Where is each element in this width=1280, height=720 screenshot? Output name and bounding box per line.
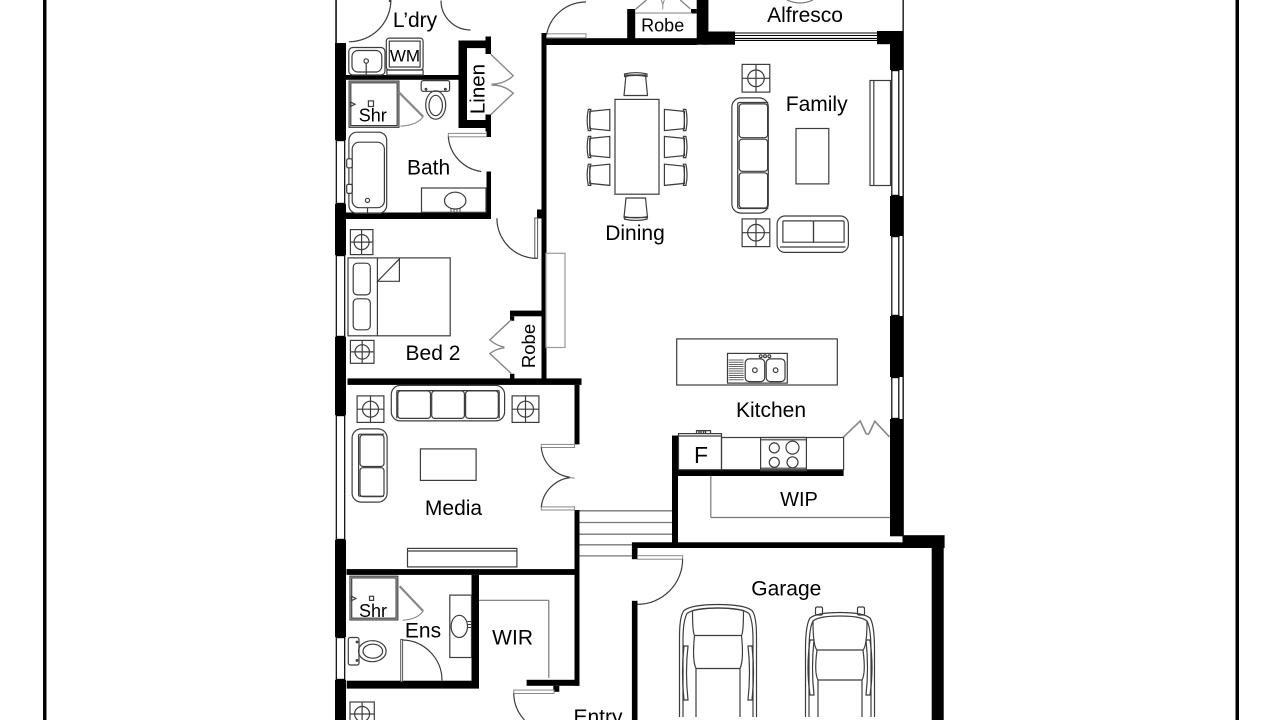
svg-text:Shr: Shr: [359, 601, 387, 621]
svg-text:Bed 2: Bed 2: [406, 342, 461, 365]
svg-text:WIR: WIR: [492, 627, 533, 650]
svg-text:Robe: Robe: [518, 324, 539, 368]
svg-text:Shr: Shr: [359, 106, 387, 126]
svg-text:WIP: WIP: [780, 489, 818, 511]
svg-text:L’dry: L’dry: [393, 9, 438, 32]
svg-text:Ens: Ens: [405, 620, 441, 643]
svg-text:Media: Media: [425, 497, 483, 520]
svg-text:WM: WM: [390, 46, 420, 65]
svg-text:Bath: Bath: [407, 157, 450, 180]
svg-text:F: F: [694, 442, 708, 468]
svg-text:Family: Family: [786, 93, 848, 116]
svg-text:Kitchen: Kitchen: [736, 399, 806, 422]
svg-text:Linen: Linen: [467, 64, 490, 114]
svg-text:Alfresco: Alfresco: [767, 4, 843, 27]
svg-text:Robe: Robe: [641, 16, 684, 36]
svg-text:Garage: Garage: [751, 578, 821, 601]
svg-text:Dining: Dining: [605, 222, 665, 245]
svg-text:Entry: Entry: [573, 706, 623, 720]
